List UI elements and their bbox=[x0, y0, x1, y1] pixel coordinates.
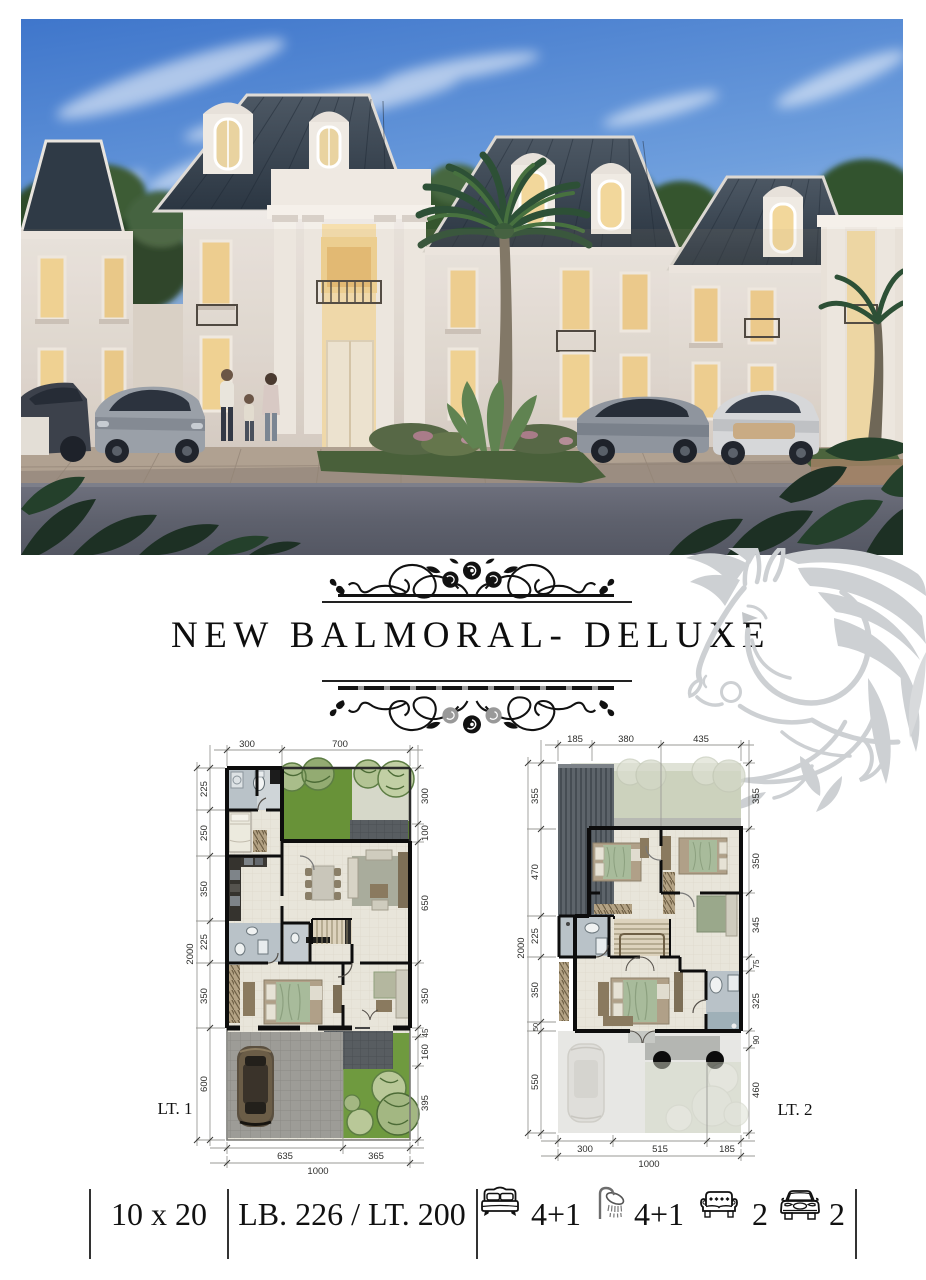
svg-text:45: 45 bbox=[421, 1028, 430, 1037]
svg-text:380: 380 bbox=[618, 734, 634, 745]
svg-text:350: 350 bbox=[199, 988, 210, 1004]
svg-text:LT. 2: LT. 2 bbox=[778, 1100, 813, 1119]
svg-text:225: 225 bbox=[199, 934, 210, 950]
svg-text:635: 635 bbox=[277, 1151, 293, 1162]
svg-text:350: 350 bbox=[420, 988, 431, 1004]
svg-text:160: 160 bbox=[420, 1044, 431, 1060]
svg-text:435: 435 bbox=[693, 734, 709, 745]
svg-text:550: 550 bbox=[530, 1074, 541, 1090]
svg-text:515: 515 bbox=[652, 1144, 668, 1155]
svg-text:650: 650 bbox=[420, 895, 431, 911]
svg-text:700: 700 bbox=[332, 739, 348, 750]
svg-text:365: 365 bbox=[368, 1151, 384, 1162]
svg-text:350: 350 bbox=[751, 853, 762, 869]
svg-text:345: 345 bbox=[751, 917, 762, 933]
svg-text:460: 460 bbox=[751, 1082, 762, 1098]
svg-text:1000: 1000 bbox=[307, 1166, 328, 1177]
svg-text:185: 185 bbox=[567, 734, 583, 745]
svg-text:355: 355 bbox=[530, 788, 541, 804]
svg-text:600: 600 bbox=[199, 1076, 210, 1092]
svg-text:225: 225 bbox=[530, 928, 541, 944]
svg-text:2000: 2000 bbox=[185, 943, 196, 964]
svg-text:1000: 1000 bbox=[638, 1159, 659, 1170]
svg-text:395: 395 bbox=[420, 1095, 431, 1111]
svg-text:185: 185 bbox=[719, 1144, 735, 1155]
svg-text:325: 325 bbox=[751, 993, 762, 1009]
svg-text:350: 350 bbox=[530, 982, 541, 998]
svg-text:350: 350 bbox=[199, 881, 210, 897]
svg-text:300: 300 bbox=[577, 1144, 593, 1155]
svg-text:225: 225 bbox=[199, 781, 210, 797]
svg-text:LT. 1: LT. 1 bbox=[158, 1099, 193, 1118]
svg-text:90: 90 bbox=[752, 1035, 761, 1044]
svg-text:50: 50 bbox=[531, 1023, 540, 1031]
svg-text:300: 300 bbox=[420, 788, 431, 804]
svg-text:250: 250 bbox=[199, 825, 210, 841]
svg-text:470: 470 bbox=[530, 864, 541, 880]
svg-text:355: 355 bbox=[751, 788, 762, 804]
svg-text:100: 100 bbox=[420, 825, 431, 841]
svg-text:75: 75 bbox=[752, 959, 761, 968]
svg-text:300: 300 bbox=[239, 739, 255, 750]
svg-text:2000: 2000 bbox=[516, 937, 527, 958]
